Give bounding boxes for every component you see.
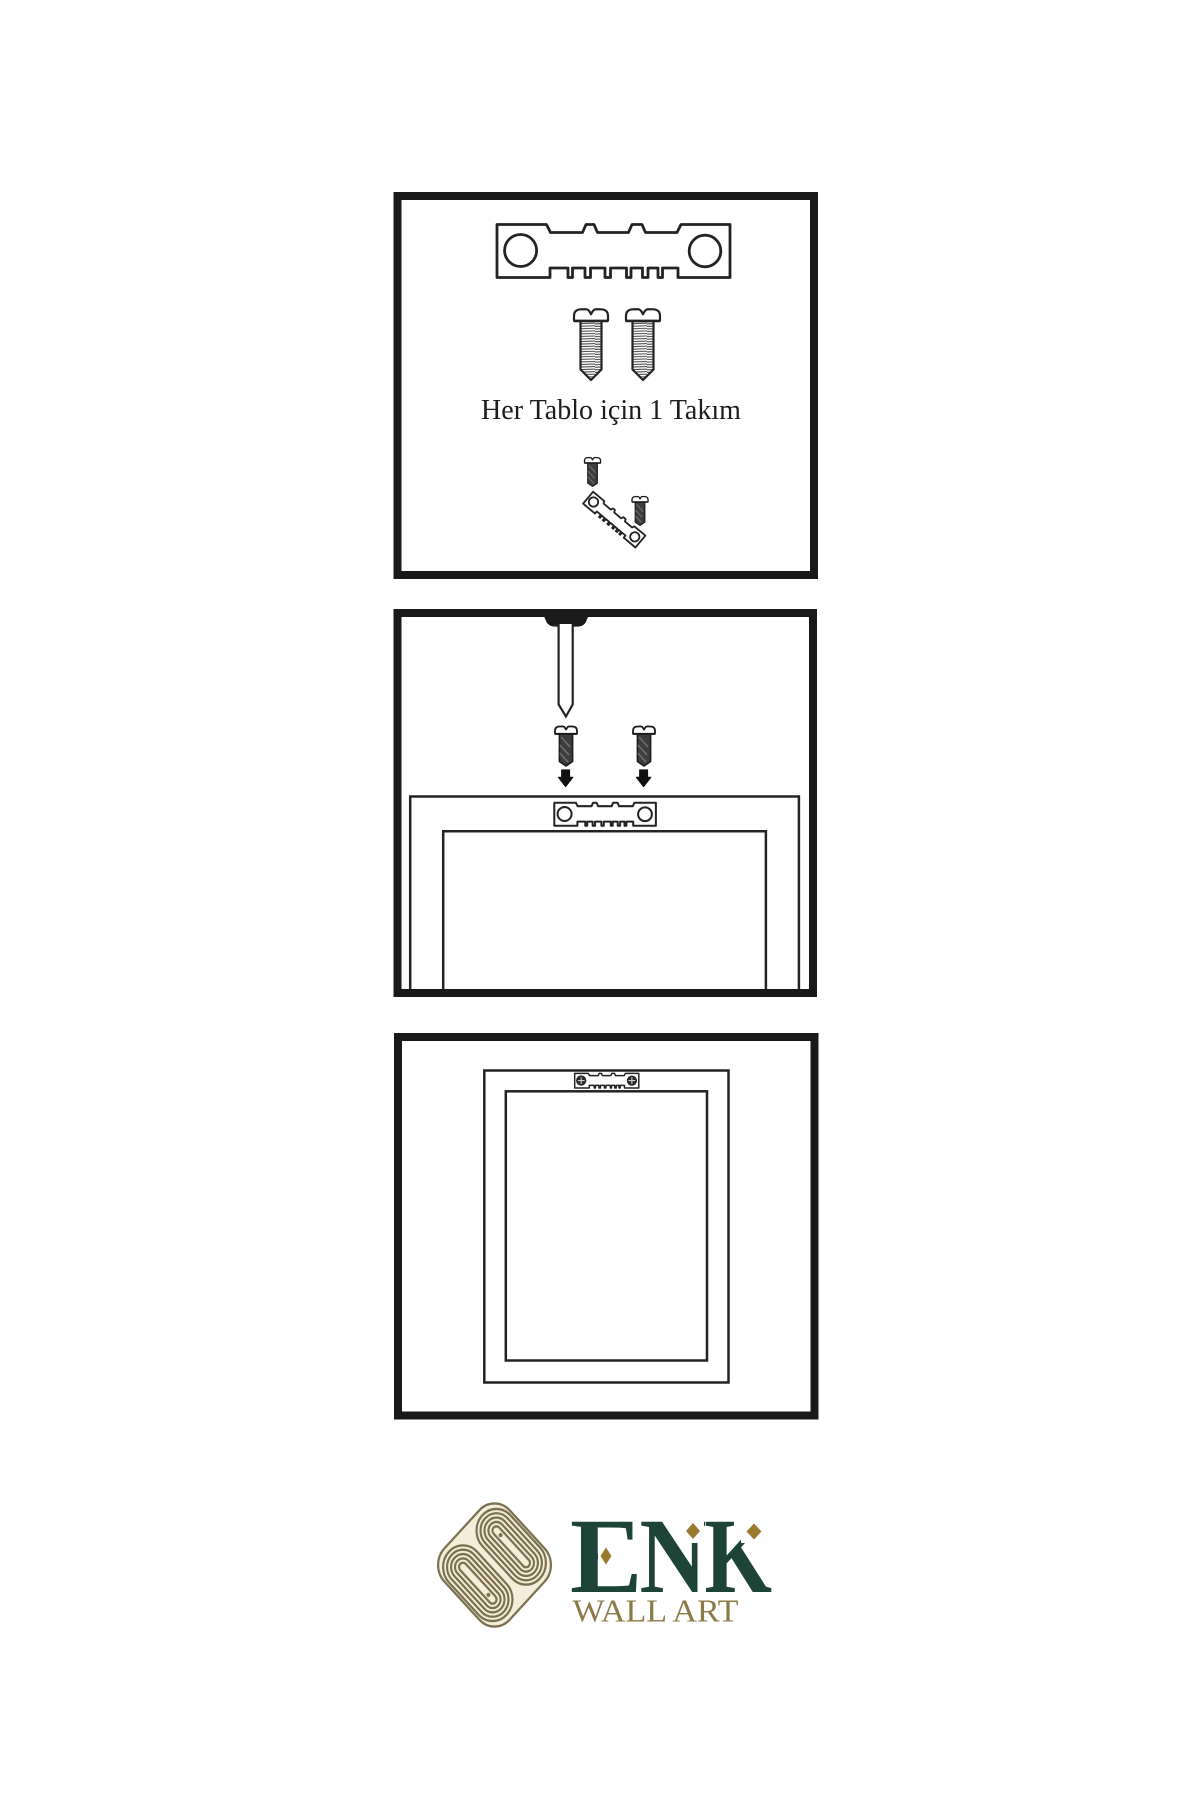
svg-text:WALL ART: WALL ART [573, 1594, 739, 1629]
svg-text:Her Tablo için 1 Takım: Her Tablo için 1 Takım [481, 395, 741, 426]
